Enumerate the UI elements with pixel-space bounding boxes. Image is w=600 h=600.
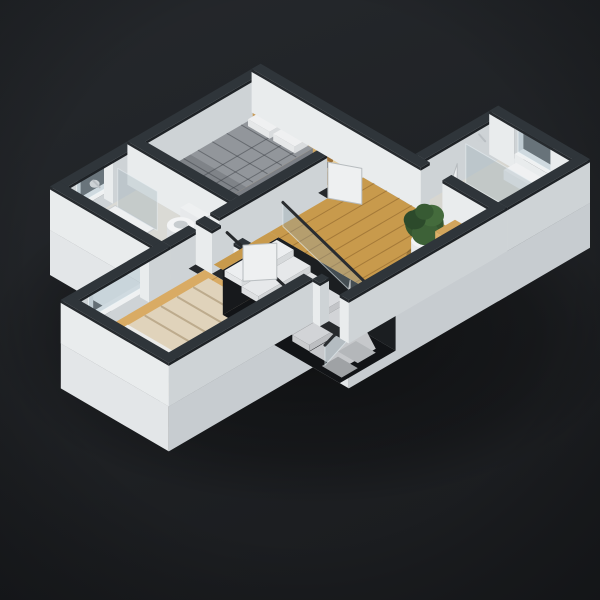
door-leaf-bedroom1 (243, 243, 277, 281)
wall-south (169, 361, 178, 407)
wall-wing-left-a (313, 282, 320, 327)
door-leaf-bedroom2 (328, 162, 362, 204)
floorplan-3d-render (0, 0, 600, 600)
floorplan-svg (0, 0, 600, 600)
plant-foliage (415, 204, 433, 220)
wall-wing-left-a (320, 281, 329, 327)
wall-wing-front (340, 298, 349, 344)
